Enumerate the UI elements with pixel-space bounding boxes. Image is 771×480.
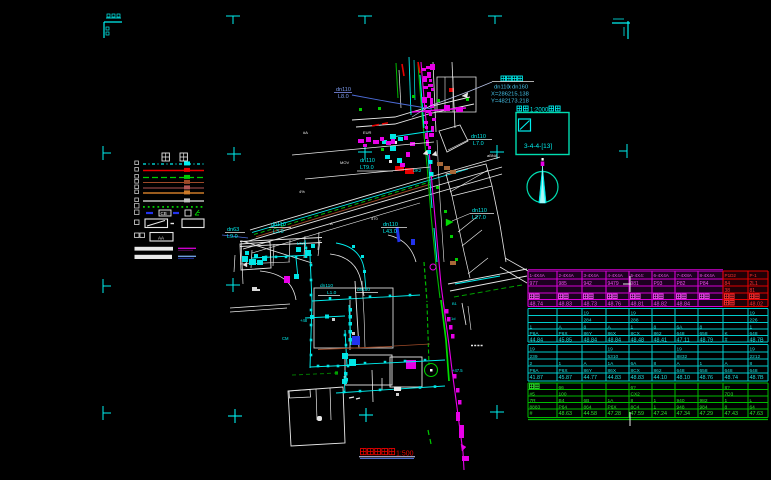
- svg-text:EUR: EUR: [363, 130, 372, 135]
- svg-text:84: 84: [725, 281, 731, 287]
- svg-text:48.83: 48.83: [631, 375, 645, 381]
- svg-text:6-4X4A: 6-4X4A: [654, 273, 670, 278]
- svg-text:8: 8: [700, 324, 703, 330]
- svg-text:47.11: 47.11: [677, 337, 690, 343]
- svg-text:8C4: 8C4: [631, 404, 640, 410]
- svg-text:CM: CM: [282, 336, 289, 341]
- svg-text:47.43: 47.43: [725, 411, 739, 417]
- svg-text:48.73: 48.73: [584, 301, 598, 307]
- svg-text:239: 239: [530, 354, 538, 360]
- svg-text:86Y: 86Y: [584, 331, 593, 337]
- svg-text:7D3: 7D3: [725, 391, 734, 397]
- svg-text:L8.0: L8.0: [338, 94, 349, 100]
- svg-text:P93: P93: [654, 281, 663, 287]
- svg-text:47.59: 47.59: [631, 411, 645, 417]
- svg-text:86X: 86X: [608, 368, 617, 374]
- svg-text:P82: P82: [677, 281, 686, 287]
- svg-text:19: 19: [750, 310, 756, 316]
- svg-text:1: 1: [700, 361, 703, 367]
- svg-text:8: 8: [631, 398, 634, 404]
- svg-text:86X: 86X: [608, 331, 617, 337]
- svg-text:48.7B: 48.7B: [750, 375, 764, 381]
- svg-text:L0J: L0J: [297, 241, 304, 246]
- svg-text:7R: 7R: [530, 398, 537, 404]
- svg-text:8-4X4A: 8-4X4A: [700, 273, 716, 278]
- svg-text:Y=482173.218: Y=482173.218: [491, 99, 529, 105]
- svg-text:19: 19: [631, 310, 637, 316]
- svg-text:3-4X4A: 3-4X4A: [584, 273, 600, 278]
- svg-text:41.87: 41.87: [530, 375, 544, 381]
- svg-text:4-4X4A: 4-4X4A: [608, 273, 624, 278]
- svg-text:P6A: P6A: [530, 331, 540, 337]
- svg-text:64: 64: [750, 404, 756, 410]
- svg-text:8CX: 8CX: [631, 331, 641, 337]
- svg-text:6A: 6A: [677, 324, 684, 330]
- svg-text:48.48: 48.48: [631, 337, 645, 343]
- svg-text:dn160: dn160: [512, 85, 528, 91]
- svg-text:8: 8: [725, 404, 728, 410]
- svg-text:942: 942: [584, 281, 593, 287]
- svg-text:dn110: dn110: [471, 134, 486, 140]
- svg-text:7-4X8A: 7-4X8A: [677, 273, 693, 278]
- svg-text:P6X: P6X: [559, 331, 569, 337]
- svg-text:L43.0: L43.0: [383, 229, 397, 235]
- svg-text:8: 8: [654, 324, 657, 330]
- svg-text:MOV: MOV: [340, 160, 349, 165]
- svg-text:48.82: 48.82: [654, 301, 668, 307]
- svg-text:P1D2: P1D2: [725, 273, 737, 278]
- svg-text:48.84: 48.84: [677, 301, 691, 307]
- svg-text:100: 100: [559, 391, 567, 397]
- svg-text:P6X: P6X: [608, 404, 618, 410]
- svg-text:19: 19: [584, 310, 590, 316]
- svg-text:6B: 6B: [584, 398, 590, 404]
- svg-text:48.84: 48.84: [584, 337, 598, 343]
- svg-text:648: 648: [725, 368, 733, 374]
- svg-text:226: 226: [750, 317, 758, 323]
- svg-text:5310: 5310: [608, 354, 619, 360]
- svg-text:1: 1: [631, 324, 634, 330]
- svg-text:47.29: 47.29: [700, 411, 714, 417]
- svg-text:A: A: [330, 221, 333, 226]
- svg-text:948: 948: [677, 404, 685, 410]
- svg-text:8CX: 8CX: [631, 368, 641, 374]
- svg-text:864: 864: [584, 404, 592, 410]
- svg-text:48.81: 48.81: [631, 301, 645, 307]
- svg-text:984: 984: [700, 404, 708, 410]
- svg-text:4%: 4%: [299, 189, 305, 194]
- svg-text:DK2: DK2: [413, 168, 422, 173]
- svg-text:44.58: 44.58: [584, 411, 598, 417]
- svg-text:x: x: [508, 85, 511, 91]
- svg-text:470: 470: [371, 216, 378, 221]
- svg-text:dn110: dn110: [383, 222, 398, 228]
- svg-text:658: 658: [700, 368, 708, 374]
- svg-text:284: 284: [584, 317, 592, 323]
- svg-text:+48: +48: [300, 318, 308, 323]
- svg-text:45.87: 45.87: [559, 375, 573, 381]
- svg-text:44.10: 44.10: [654, 375, 668, 381]
- svg-text:86Y: 86Y: [584, 368, 593, 374]
- svg-text:48.74: 48.74: [530, 301, 544, 307]
- svg-text:2: 2: [530, 361, 533, 367]
- svg-text:#5: #5: [530, 391, 536, 397]
- svg-text:982: 982: [700, 398, 708, 404]
- svg-text:862: 862: [654, 368, 662, 374]
- svg-text:47.24: 47.24: [654, 411, 668, 417]
- svg-text:940: 940: [677, 398, 685, 404]
- svg-text:B4: B4: [559, 398, 565, 404]
- svg-text:9479: 9479: [608, 281, 619, 287]
- svg-text:CX2: CX2: [631, 391, 641, 397]
- svg-text:48.83: 48.83: [559, 301, 573, 307]
- svg-text:44.77: 44.77: [584, 375, 598, 381]
- svg-text:1-4X4A: 1-4X4A: [530, 273, 546, 278]
- svg-text:81: 81: [750, 288, 756, 294]
- svg-text:648: 648: [677, 331, 685, 337]
- svg-text:648: 648: [750, 331, 758, 337]
- svg-text:981: 981: [631, 281, 640, 287]
- svg-text:3-4-4-[13]: 3-4-4-[13]: [524, 143, 552, 150]
- svg-text:L9.0: L9.0: [227, 234, 238, 240]
- svg-text:658: 658: [700, 331, 708, 337]
- svg-text:1: 1: [654, 398, 657, 404]
- svg-text:862: 862: [654, 331, 662, 337]
- svg-text:8?: 8?: [725, 385, 731, 391]
- svg-text:dn110: dn110: [320, 283, 333, 289]
- svg-text:P6A: P6A: [530, 368, 540, 374]
- svg-text:1: 1: [654, 404, 657, 410]
- svg-text:648: 648: [750, 368, 758, 374]
- svg-text:X=286215.138: X=286215.138: [491, 92, 529, 98]
- svg-text:47.28: 47.28: [608, 411, 622, 417]
- svg-text:B1: B1: [452, 301, 458, 306]
- svg-text:P6X: P6X: [559, 368, 569, 374]
- svg-text:dn63: dn63: [227, 227, 239, 233]
- svg-text:L3.0: L3.0: [273, 229, 284, 235]
- svg-text:dn110: dn110: [271, 222, 286, 228]
- svg-text:+47.5: +47.5: [452, 368, 463, 373]
- svg-text:dn110: dn110: [472, 208, 487, 214]
- svg-text:47.63: 47.63: [750, 411, 764, 417]
- svg-text:1: 1: [530, 324, 533, 330]
- svg-text:48.74: 48.74: [725, 375, 739, 381]
- svg-text:48.76: 48.76: [700, 375, 714, 381]
- svg-text:6A: 6A: [631, 361, 638, 367]
- svg-text:P84: P84: [700, 281, 709, 287]
- svg-text:44.83: 44.83: [608, 375, 622, 381]
- svg-text:1: 1: [750, 324, 753, 330]
- svg-text:48.41: 48.41: [654, 337, 668, 343]
- svg-text:P64: P64: [559, 404, 568, 410]
- svg-text:977: 977: [530, 281, 539, 287]
- svg-text:66: 66: [559, 385, 565, 391]
- svg-text:CB: CB: [161, 211, 167, 216]
- svg-text:19: 19: [750, 347, 756, 353]
- svg-text:AA: AA: [158, 236, 164, 241]
- svg-text:47.34: 47.34: [677, 411, 691, 417]
- svg-text:1: 1: [559, 361, 562, 367]
- svg-text:48.84: 48.84: [608, 337, 622, 343]
- svg-text:48.63: 48.63: [559, 411, 573, 417]
- svg-text:#: #: [530, 411, 533, 417]
- svg-text:L27.0: L27.0: [472, 215, 486, 221]
- svg-text:648: 648: [677, 368, 685, 374]
- svg-text:1d: 1d: [451, 316, 455, 321]
- svg-text:P-1: P-1: [750, 273, 758, 278]
- svg-text:19: 19: [677, 347, 683, 353]
- svg-text:48.7B: 48.7B: [750, 337, 764, 343]
- svg-text:2L1: 2L1: [750, 281, 759, 287]
- svg-text:dn110: dn110: [360, 158, 375, 164]
- svg-text:dn110: dn110: [357, 287, 370, 293]
- svg-text:L7.0: L7.0: [473, 141, 484, 147]
- svg-text:2-4X4A: 2-4X4A: [559, 273, 575, 278]
- svg-text:L1.0: L1.0: [327, 290, 337, 296]
- svg-text:1: 1: [725, 398, 728, 404]
- svg-text:8832: 8832: [677, 354, 688, 360]
- svg-text:48.79: 48.79: [700, 337, 714, 343]
- svg-text:8: 8: [584, 324, 587, 330]
- svg-text:48.02: 48.02: [750, 301, 764, 307]
- svg-text:19: 19: [608, 347, 614, 353]
- svg-text:L: L: [750, 398, 753, 404]
- svg-text:985: 985: [559, 281, 568, 287]
- svg-text:LT9.0: LT9.0: [360, 165, 374, 171]
- svg-text:5-4X4:: 5-4X4:: [631, 273, 645, 278]
- svg-text:#A: #A: [303, 130, 308, 135]
- svg-text:48.10: 48.10: [677, 375, 691, 381]
- svg-text:2212: 2212: [750, 354, 761, 360]
- svg-text:aBNA: aBNA: [487, 153, 498, 158]
- svg-text:#: #: [725, 337, 728, 343]
- svg-text:48.76: 48.76: [608, 301, 622, 307]
- svg-text:8883: 8883: [530, 404, 541, 410]
- svg-text:45.85: 45.85: [559, 337, 573, 343]
- svg-text:38: 38: [725, 288, 731, 294]
- svg-text:8: 8: [654, 361, 657, 367]
- svg-text:6?: 6?: [631, 385, 637, 391]
- svg-text:1A: 1A: [608, 361, 615, 367]
- svg-text:8: 8: [750, 361, 753, 367]
- svg-text:288: 288: [631, 317, 639, 323]
- svg-text:44.84: 44.84: [530, 337, 544, 343]
- svg-text:19: 19: [530, 347, 536, 353]
- svg-text:1A: 1A: [608, 398, 615, 404]
